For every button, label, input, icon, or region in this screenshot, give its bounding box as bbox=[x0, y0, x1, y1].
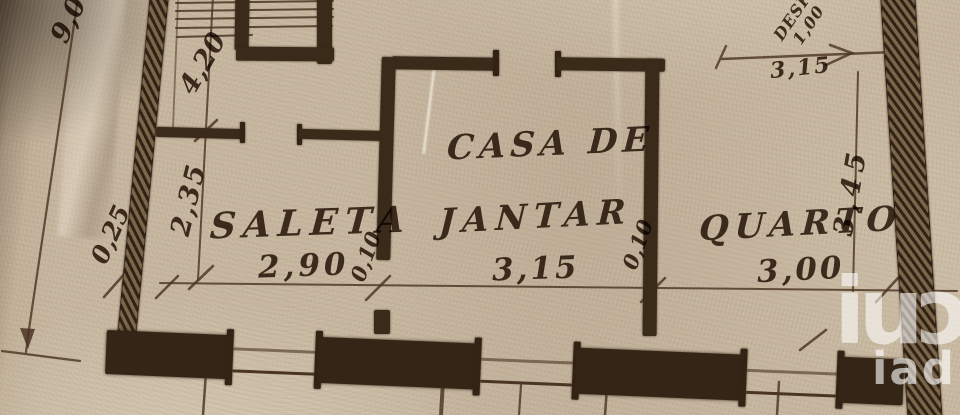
wall-segment bbox=[105, 330, 231, 379]
wall-segment bbox=[317, 337, 479, 390]
partition-door-foot bbox=[374, 310, 390, 334]
window-sill bbox=[232, 369, 317, 376]
partition-jantar-quarto bbox=[643, 59, 660, 336]
room-dim-saleta: 2,90 bbox=[257, 249, 350, 283]
window-sill bbox=[746, 391, 836, 398]
door-jamb bbox=[240, 122, 245, 143]
dimension-arrowhead bbox=[20, 328, 35, 349]
window-line bbox=[233, 347, 318, 353]
window-sill bbox=[480, 380, 572, 387]
room-dim-jantar: 3,15 bbox=[491, 252, 580, 286]
dim-annex-front: 3,15 bbox=[769, 54, 833, 82]
room-label-quarto: QUARTO bbox=[698, 202, 903, 247]
stair-landing-wall bbox=[236, 47, 334, 62]
room-label-casa-de: CASA DE bbox=[446, 122, 655, 165]
jantar-top-wall-left bbox=[392, 56, 498, 70]
window-line bbox=[481, 358, 573, 364]
stair-wall-middle bbox=[235, 0, 250, 50]
window-line bbox=[747, 369, 837, 375]
window-jamb bbox=[225, 329, 234, 385]
window-jamb bbox=[472, 337, 481, 395]
floor-plan-photo: SALETA 2,90 CASA DE JANTAR 3,15 QUARTO 3… bbox=[0, 0, 960, 415]
window-jamb bbox=[738, 349, 747, 407]
door-jamb bbox=[493, 50, 499, 76]
room-dim-quarto: 3,00 bbox=[756, 253, 845, 289]
wall-segment bbox=[575, 348, 745, 401]
room-label-jantar: JANTAR bbox=[438, 195, 633, 239]
watermark-brand: iad bbox=[872, 346, 956, 391]
